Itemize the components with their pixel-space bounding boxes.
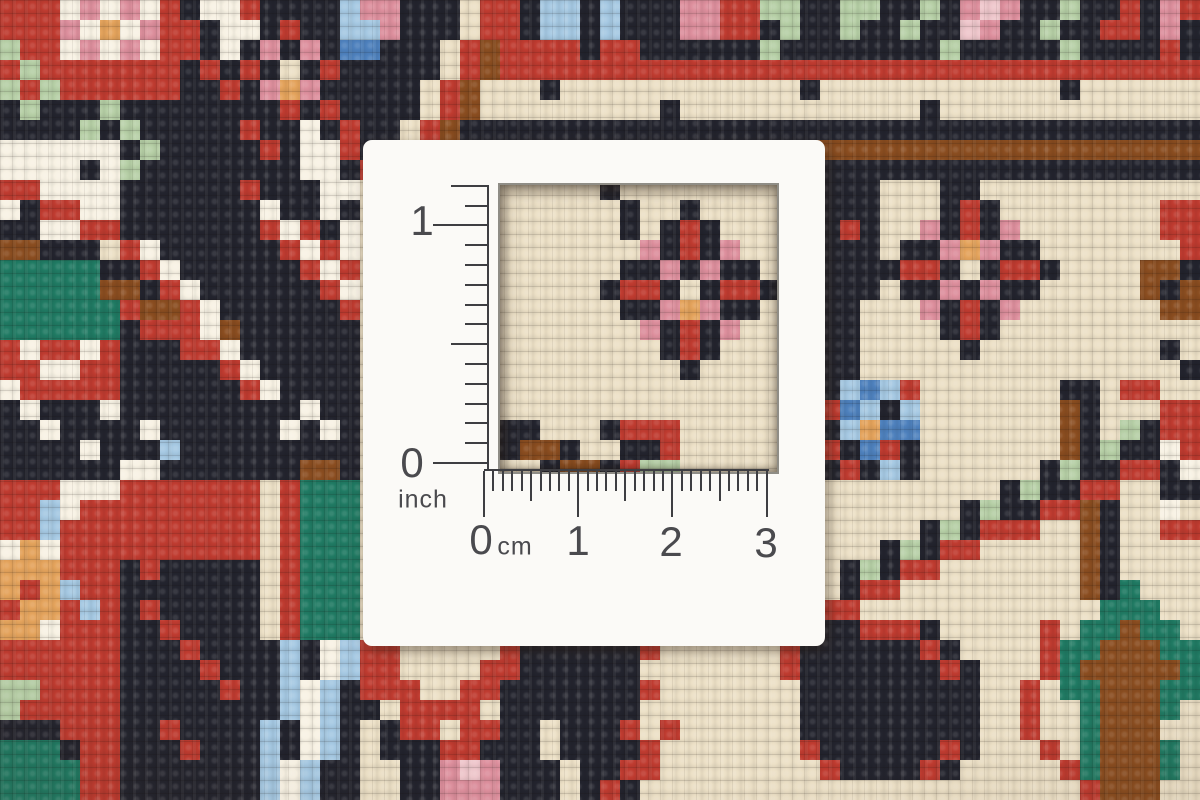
cm-0-label: 0 [469,519,492,561]
cm-1-label: 1 [566,520,589,562]
inch-1-label: 1 [410,200,433,242]
rug-photo: 1 0 inch 0 cm 1 2 3 [0,0,1200,800]
card-surface-right [777,185,825,472]
measurement-card: 1 0 inch 0 cm 1 2 3 [363,140,825,646]
cm-ruler-line [484,469,769,471]
cm-2-label: 2 [659,521,682,563]
inch-ruler-line [487,185,489,470]
inch-unit-label: inch [398,488,448,513]
cm-unit-label: cm [497,535,532,560]
card-surface-top [363,140,825,185]
inch-0-label: 0 [400,442,423,484]
cm-3-label: 3 [754,522,777,564]
card-cutout-window [498,183,779,474]
